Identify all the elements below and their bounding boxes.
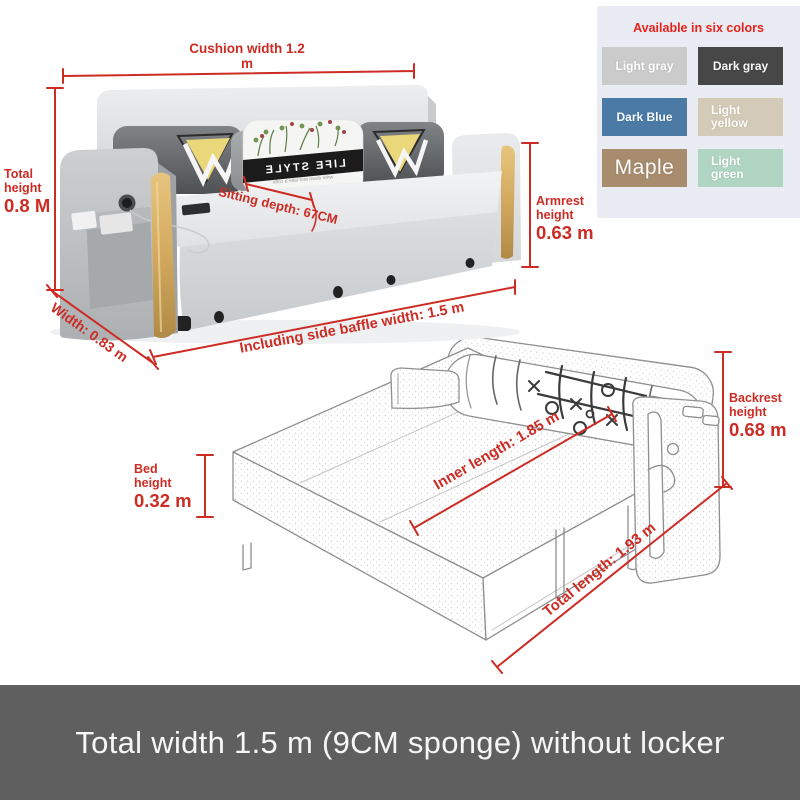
sketch-leg bbox=[243, 543, 251, 570]
back-pillow-dark-right bbox=[356, 122, 444, 186]
dim-bed-height-label: Bed height 0.32 m bbox=[134, 462, 194, 512]
pocket-card bbox=[71, 211, 97, 231]
swatch-light-green: Light green bbox=[698, 149, 783, 187]
swatch-dark-blue: Dark Blue bbox=[602, 98, 687, 136]
swatch-maple: Maple bbox=[602, 149, 687, 187]
footer-text: Total width 1.5 m (9CM sponge) without l… bbox=[75, 725, 724, 761]
footer-banner: Total width 1.5 m (9CM sponge) without l… bbox=[0, 685, 800, 800]
pocket-card bbox=[99, 212, 133, 235]
swatch-light-gray: Light gray bbox=[602, 47, 687, 85]
sketch-left-armrest bbox=[391, 368, 459, 408]
color-panel-title: Available in six colors bbox=[597, 21, 800, 35]
swatch-dark-gray: Dark gray bbox=[698, 47, 783, 85]
wood-strip-right bbox=[501, 146, 515, 259]
sofa-bed-sketch bbox=[233, 334, 720, 640]
color-swatches: Light gray Dark gray Dark Blue Light yel… bbox=[602, 47, 800, 187]
dim-backrest-height-label: Backrest height 0.68 m bbox=[729, 391, 797, 441]
product-dimension-diagram: LIFE STYLE write down and take a coffe bbox=[0, 0, 800, 800]
back-pillow-botanical: LIFE STYLE write down and take a coffe bbox=[243, 120, 363, 194]
dim-total-height-label: Total height 0.8 M bbox=[4, 167, 64, 217]
color-options-panel: Available in six colors Light gray Dark … bbox=[597, 6, 800, 218]
dim-cushion-width-label: Cushion width 1.2 m bbox=[182, 41, 312, 71]
dim-armrest-height-label: Armrest height 0.63 m bbox=[536, 194, 606, 244]
swatch-light-yellow: Light yellow bbox=[698, 98, 783, 136]
